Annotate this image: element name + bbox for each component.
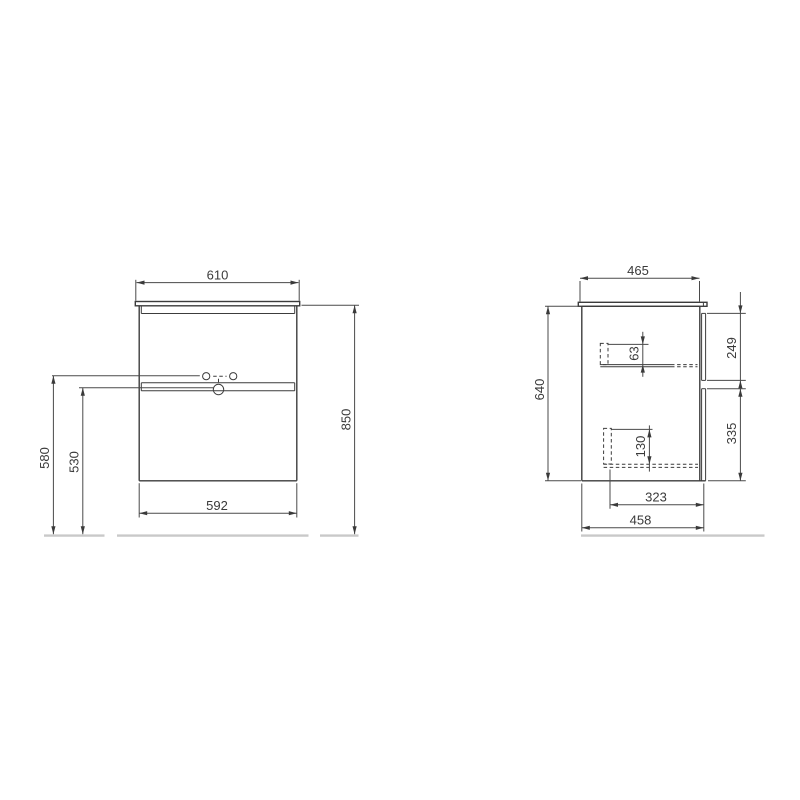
dim-label-130: 130 (633, 436, 648, 458)
front-view: 610 592 850 580 530 (37, 267, 359, 534)
front-view-dimensions (51, 280, 359, 534)
dim-label-850: 850 (339, 409, 354, 431)
front-view-dimension-labels: 610 592 850 580 530 (37, 267, 353, 513)
dim-label-640: 640 (532, 379, 547, 401)
technical-drawing-page: 610 592 850 580 530 (0, 0, 800, 800)
dim-label-580: 580 (37, 447, 52, 469)
side-view-countertop (578, 302, 707, 306)
dim-label-63: 63 (627, 346, 642, 360)
side-view-drawer-fronts (702, 313, 706, 480)
front-view-cabinet-body (139, 306, 297, 481)
dim-label-249: 249 (724, 337, 739, 359)
tap-hole-markings (203, 373, 237, 395)
dim-label-610: 610 (207, 267, 229, 282)
front-view-countertop (135, 302, 299, 306)
dim-label-465: 465 (627, 263, 649, 278)
dim-label-592: 592 (206, 498, 228, 513)
dim-label-530: 530 (67, 451, 82, 473)
dim-label-323: 323 (645, 490, 667, 505)
dim-label-458: 458 (630, 513, 652, 528)
vanity-technical-drawing: 610 592 850 580 530 (0, 0, 800, 800)
dim-label-335: 335 (724, 423, 739, 445)
side-view: 465 640 63 130 249 335 323 458 (532, 263, 746, 532)
